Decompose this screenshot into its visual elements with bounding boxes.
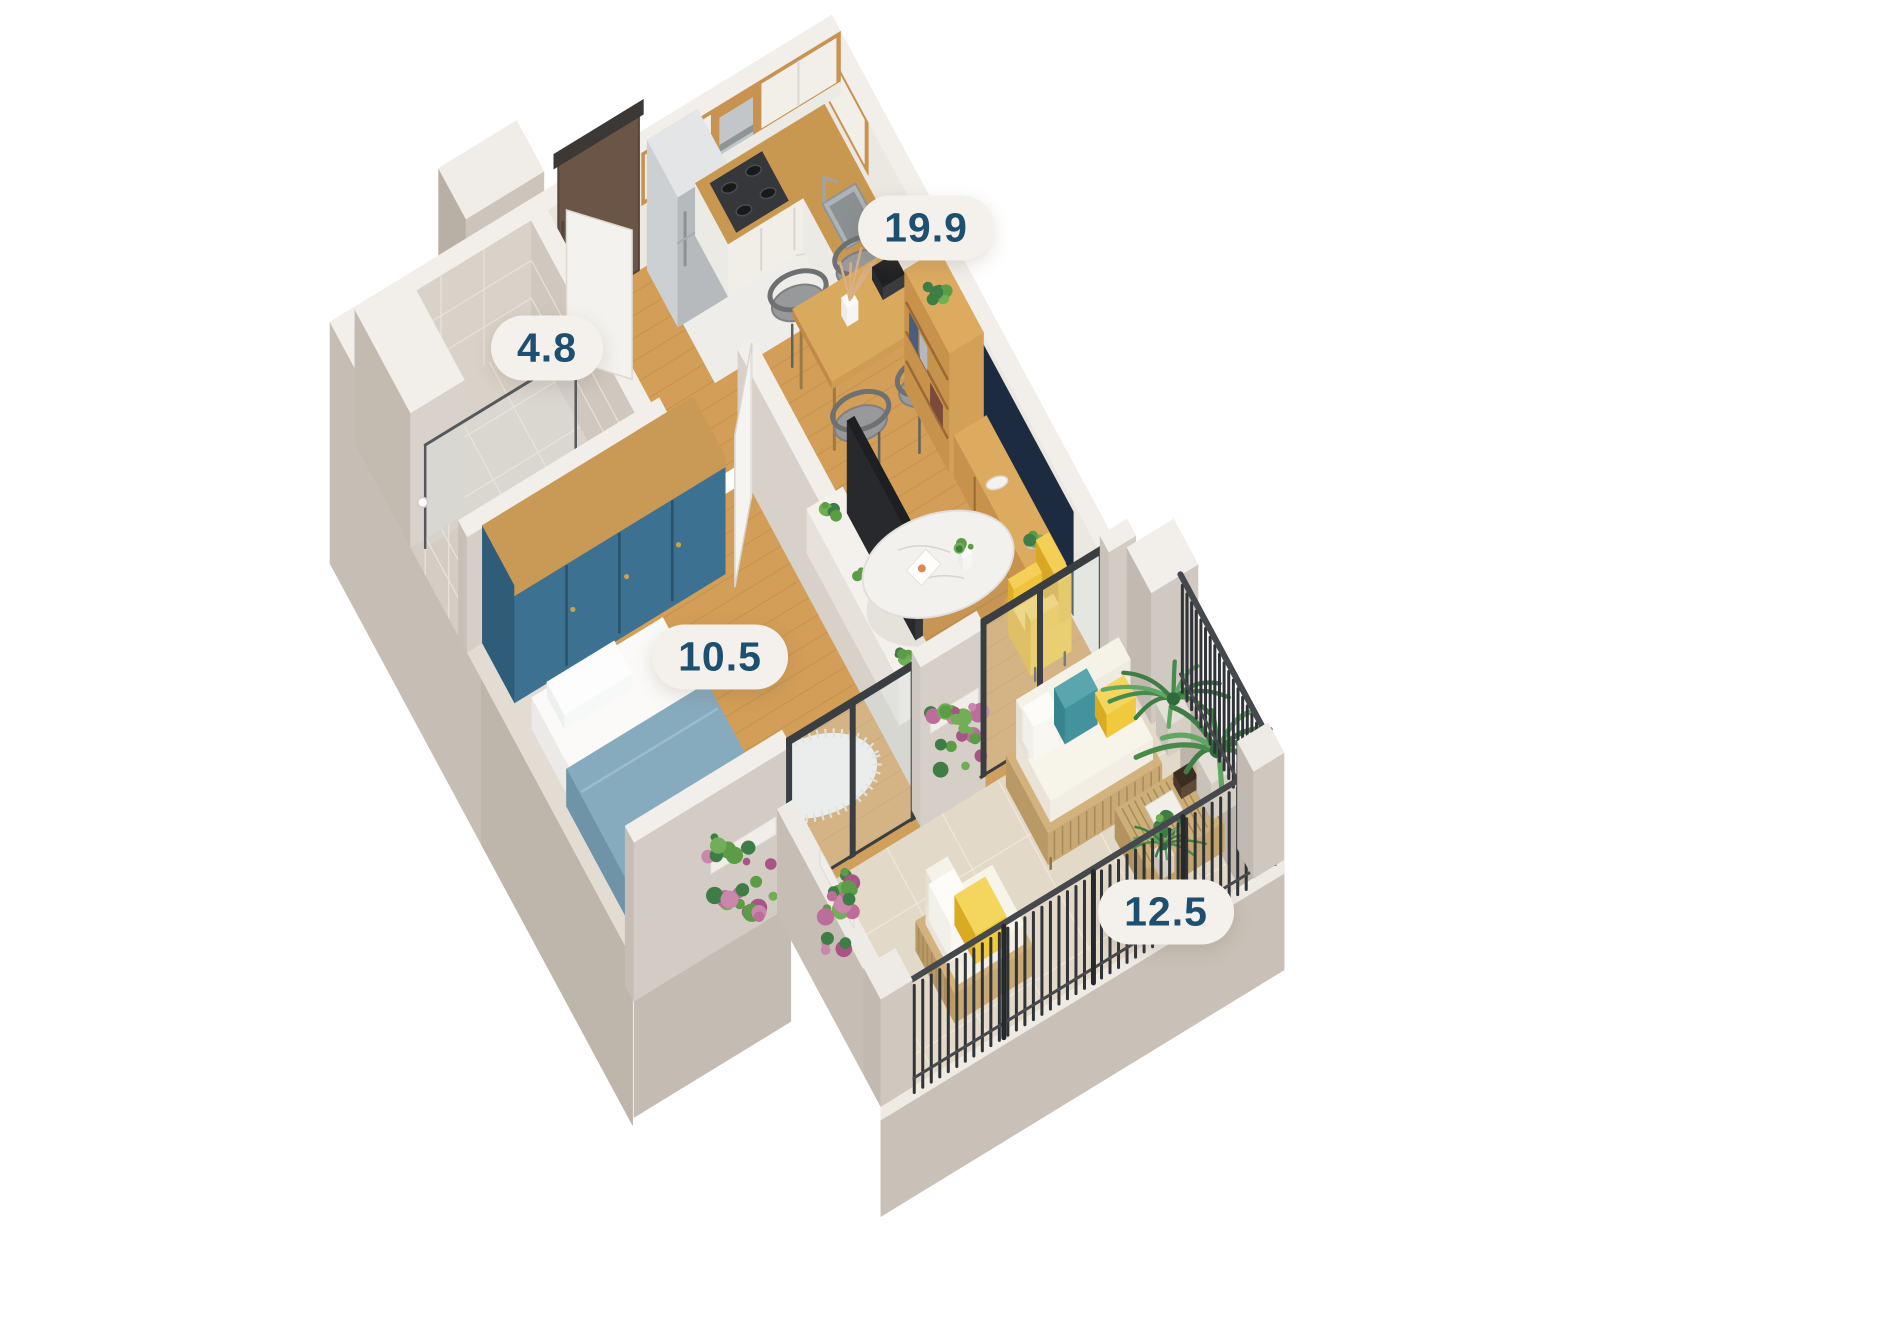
room-area-label-balcony: 12.5 xyxy=(1098,880,1234,945)
room-area-label-bathroom: 4.8 xyxy=(491,316,603,381)
room-area-label-kitchen-living: 19.9 xyxy=(858,196,994,261)
floor-plan-stage: 19.9 4.8 10.5 12.5 xyxy=(0,0,1900,1319)
room-area-label-bedroom: 10.5 xyxy=(652,625,788,690)
